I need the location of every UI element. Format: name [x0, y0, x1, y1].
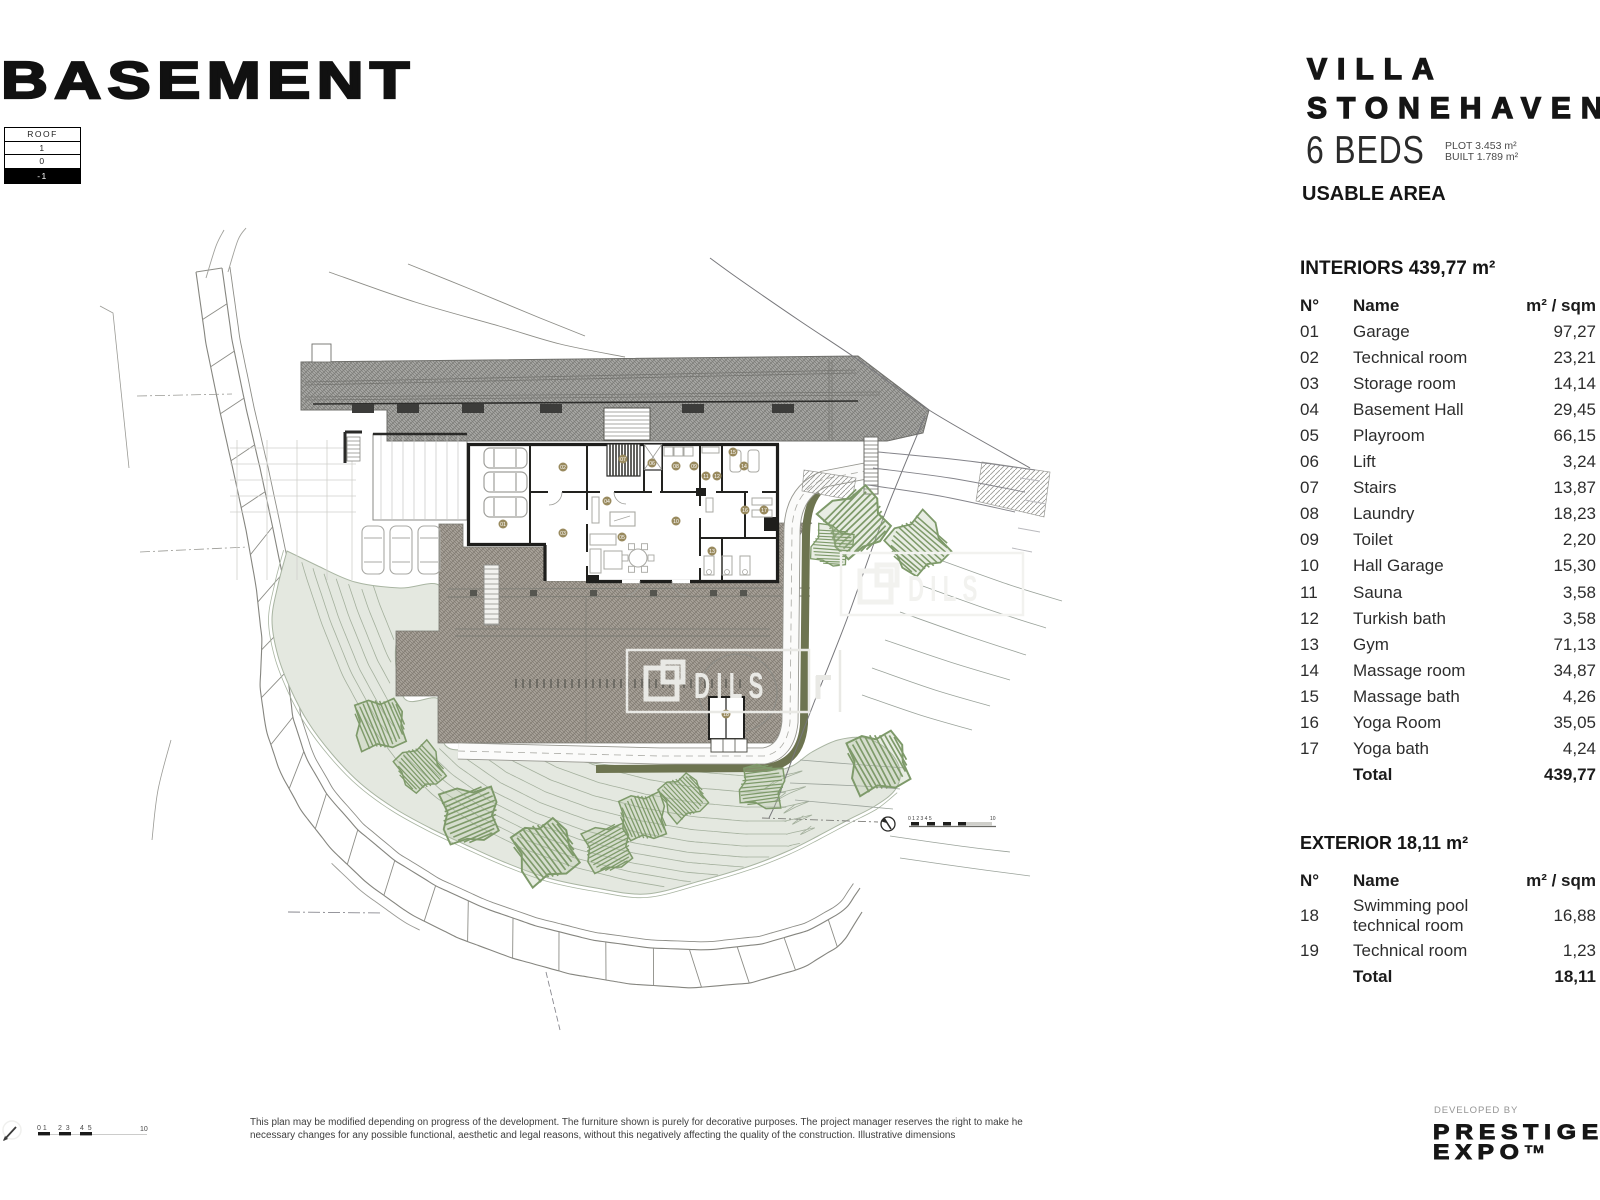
- svg-text:04: 04: [604, 499, 610, 505]
- svg-text:15: 15: [730, 450, 736, 456]
- svg-text:4 5: 4 5: [80, 1125, 92, 1132]
- svg-text:07: 07: [620, 457, 626, 463]
- svg-text:2 3: 2 3: [58, 1125, 70, 1132]
- svg-text:09: 09: [691, 464, 697, 470]
- svg-text:10: 10: [673, 519, 679, 525]
- svg-text:03: 03: [560, 531, 566, 537]
- svg-text:0 1 2 3 4 5: 0 1 2 3 4 5: [908, 816, 932, 822]
- svg-text:10: 10: [990, 816, 996, 822]
- svg-text:01: 01: [500, 522, 506, 528]
- svg-text:17: 17: [761, 508, 767, 514]
- svg-text:12: 12: [714, 474, 720, 480]
- svg-text:08: 08: [673, 464, 679, 470]
- svg-text:DILS: DILS: [694, 667, 770, 707]
- svg-text:13: 13: [709, 549, 715, 555]
- svg-text:02: 02: [560, 465, 566, 471]
- svg-text:06: 06: [649, 461, 655, 467]
- svg-text:16: 16: [742, 508, 748, 514]
- svg-text:DILS: DILS: [908, 570, 984, 610]
- svg-text:05: 05: [619, 535, 625, 541]
- svg-text:14: 14: [741, 464, 747, 470]
- svg-text:0 1: 0 1: [37, 1125, 47, 1132]
- svg-text:10: 10: [140, 1126, 148, 1133]
- svg-text:11: 11: [703, 474, 708, 480]
